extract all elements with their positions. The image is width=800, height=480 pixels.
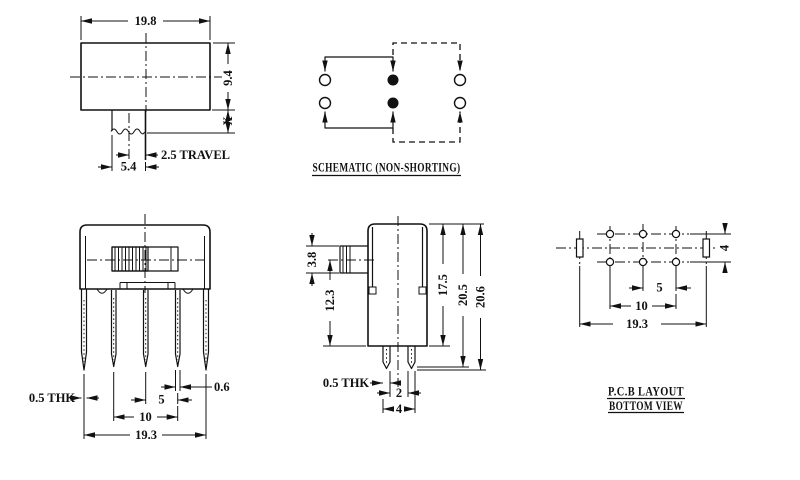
terminal-open — [455, 75, 466, 86]
dim-height-label: 9.4 — [221, 69, 235, 85]
mount-slot-left — [577, 239, 584, 257]
pad-hole — [672, 230, 679, 237]
pcb-labels: P.C.B LAYOUT BOTTOM VIEW — [607, 384, 685, 414]
dim-span-label: 10 — [139, 410, 152, 424]
terminal-open — [320, 75, 331, 86]
terminal-open — [320, 98, 331, 109]
mount-slot-right — [703, 239, 710, 257]
dim-pitch-label: 5 — [656, 281, 662, 295]
schematic-title: SCHEMATIC (NON-SHORTING) — [313, 160, 461, 175]
pad-hole — [606, 258, 613, 265]
dim-height1-label: 20.5 — [456, 284, 470, 306]
switch-technical-drawing: 19.8 9.4 X 2.5 TRAVEL 5.4 — [0, 0, 800, 480]
pcb-label-line2: BOTTOM VIEW — [609, 398, 683, 413]
dim-total-label: 19.3 — [135, 428, 157, 442]
dim-pitch-label: 5 — [158, 393, 164, 407]
terminal-open — [455, 98, 466, 109]
pcb-label-line1: P.C.B LAYOUT — [608, 384, 684, 399]
dim-knob-height-label: 3.8 — [305, 252, 319, 268]
dim-thk-label: 0.5 THK — [323, 376, 370, 390]
dim-x-label: X — [221, 116, 235, 125]
dim-total-label: 19.3 — [626, 317, 648, 331]
terminal-common — [388, 98, 399, 109]
dim-height2-label: 20.6 — [474, 286, 488, 308]
terminal-common — [388, 75, 399, 86]
dim-body-height-label: 17.5 — [436, 274, 450, 296]
dim-pin-gap-label: 2 — [396, 386, 402, 400]
dim-width-label: 19.8 — [135, 14, 157, 28]
pad-hole — [639, 258, 646, 265]
dim-pin-span-label: 4 — [396, 402, 403, 416]
dim-thk-label: 0.5 THK — [29, 391, 76, 405]
pad-hole — [606, 230, 613, 237]
dim-knob-label: 5.4 — [121, 160, 137, 174]
dim-span-label: 10 — [635, 299, 648, 313]
drawing-canvas: 19.8 9.4 X 2.5 TRAVEL 5.4 — [0, 0, 800, 480]
dim-row-spacing-label: 4 — [718, 244, 732, 251]
dim-travel-label: 2.5 TRAVEL — [161, 148, 230, 162]
pad-hole — [639, 230, 646, 237]
dim-knob-to-base-label: 12.3 — [323, 290, 337, 312]
pad-hole — [672, 258, 679, 265]
dim-pin-width-label: 0.6 — [214, 380, 230, 394]
